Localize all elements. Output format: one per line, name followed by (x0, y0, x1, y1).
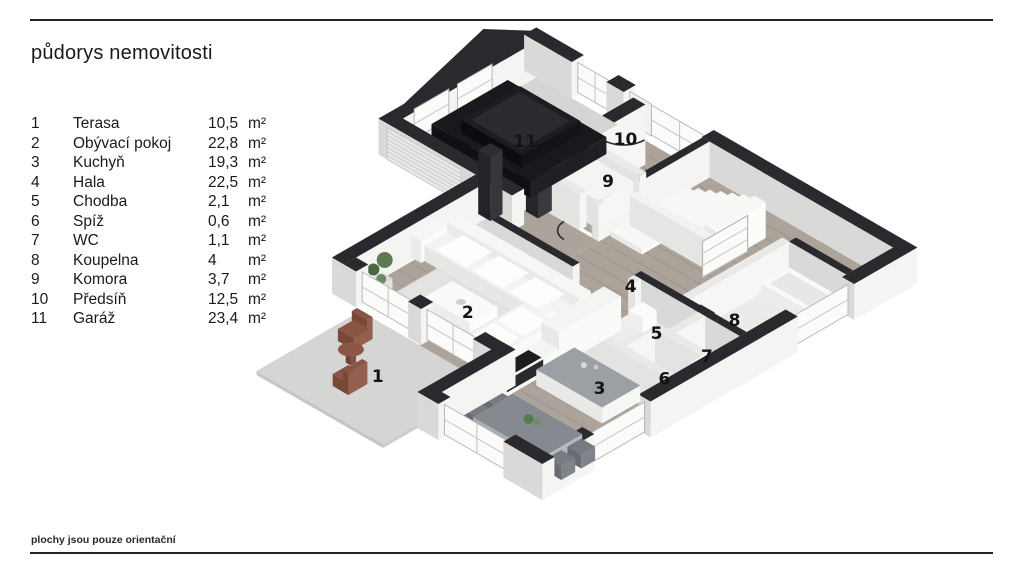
footer-note: plochy jsou pouze orientační (31, 534, 176, 546)
room-number-label: 4 (625, 277, 637, 297)
room-number-label: 10 (614, 130, 638, 150)
room-number-label: 9 (602, 172, 614, 192)
room-number-label: 7 (701, 347, 713, 367)
room-number-label: 3 (594, 379, 606, 399)
floorplan-canvas: 1234567891011 (0, 0, 1024, 576)
room-number-label: 6 (658, 370, 670, 390)
bottom-divider (30, 552, 993, 554)
room-number-label: 2 (462, 303, 474, 323)
room-number-label: 11 (513, 132, 537, 152)
room-number-label: 5 (651, 324, 663, 344)
room-number-label: 8 (729, 311, 741, 331)
page: půdorys nemovitosti 1Terasa10,5m²2Obývac… (0, 0, 1024, 576)
room-number-label: 1 (372, 367, 384, 387)
